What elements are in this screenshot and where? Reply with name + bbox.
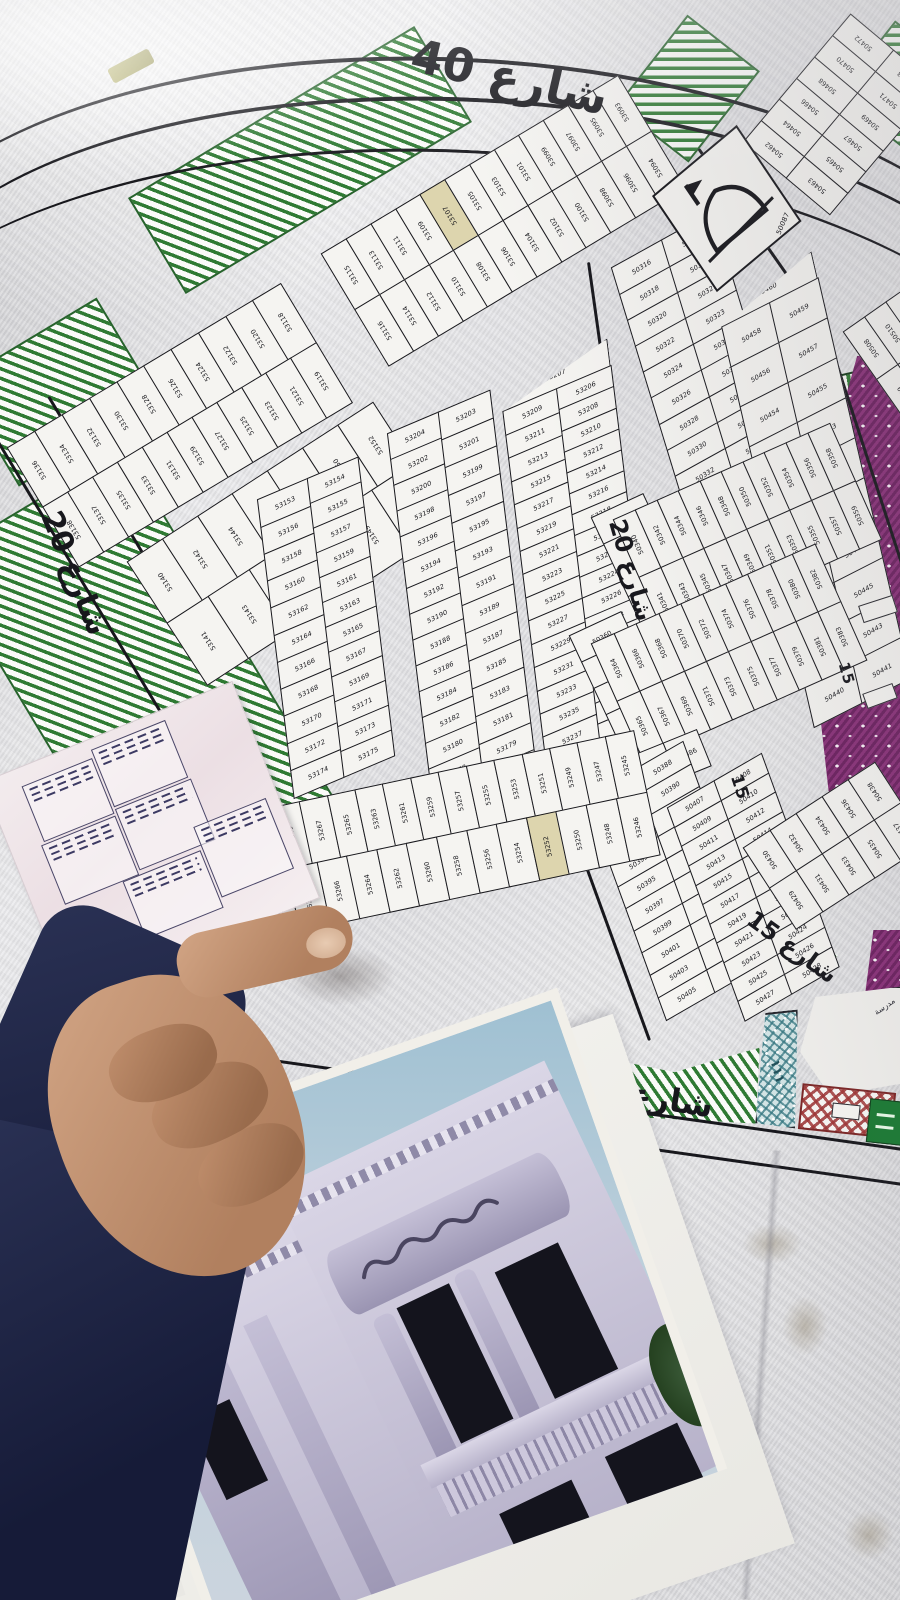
school-label: مدرسة <box>872 996 896 1017</box>
services-label-box <box>831 1102 860 1120</box>
photographed-subdivision-plan: 5313653134531325313053128531265312453122… <box>0 0 900 1600</box>
strap-tag <box>107 48 155 84</box>
school-parcel: مدرسة <box>798 986 900 1096</box>
utility-parcel-green <box>866 1098 900 1146</box>
star-parcel-label: ١١١ <box>767 1057 788 1084</box>
